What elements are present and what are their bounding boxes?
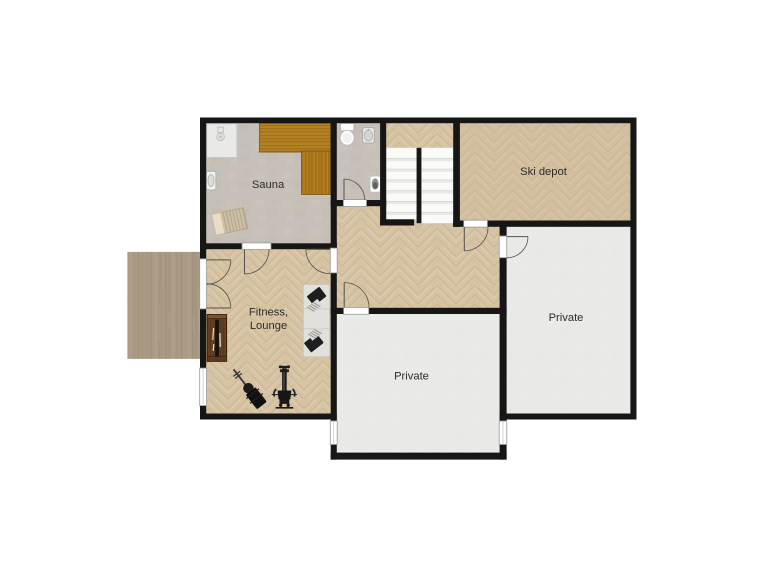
svg-text:Private: Private: [549, 312, 584, 324]
svg-text:Sauna: Sauna: [252, 179, 285, 191]
svg-text:Ski depot: Ski depot: [520, 166, 568, 178]
svg-text:Private: Private: [394, 371, 429, 383]
svg-text:Fitness,: Fitness,: [249, 306, 288, 318]
svg-text:Lounge: Lounge: [250, 320, 287, 332]
